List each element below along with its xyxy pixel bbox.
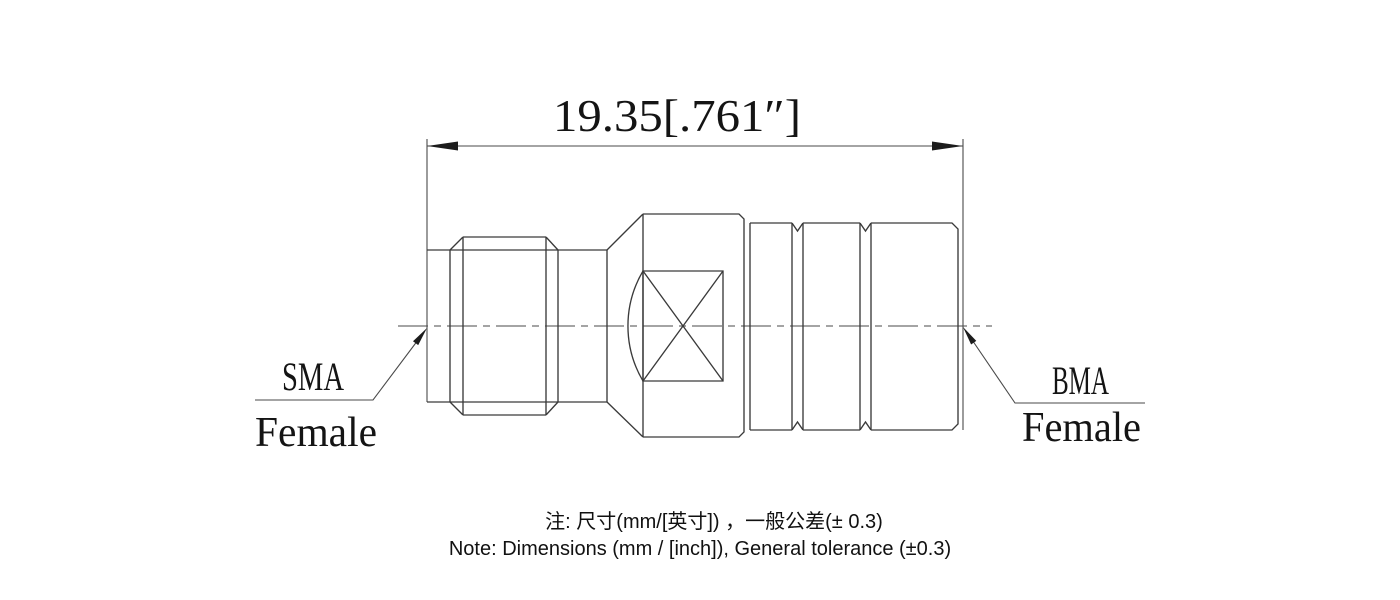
technical-drawing-page: 19.35[.761″] (0, 0, 1400, 600)
dimension-value: 19.35[.761″] (553, 91, 801, 141)
bma-label-group: BMA Female (963, 327, 1145, 451)
bma-type-label: BMA (1052, 358, 1109, 403)
sma-type-label: SMA (282, 354, 344, 399)
bma-gender-label: Female (1022, 405, 1141, 451)
dimension-arrow-left-icon (427, 142, 458, 151)
notes-block: 注: 尺寸(mm/[英寸]) ，一般公差(± 0.3) Note: Dimens… (0, 508, 1400, 563)
bma-leader-arrow-icon (963, 327, 976, 345)
dimension-annotation: 19.35[.761″] (427, 91, 963, 430)
note-line-chinese: 注: 尺寸(mm/[英寸]) ，一般公差(± 0.3) (14, 508, 1400, 536)
sma-leader-arrow-icon (413, 328, 427, 345)
note-line-english: Note: Dimensions (mm / [inch]), General … (0, 536, 1400, 563)
dimension-arrow-right-icon (932, 142, 963, 151)
sma-label-group: SMA Female (255, 328, 427, 456)
sma-gender-label: Female (255, 410, 377, 456)
